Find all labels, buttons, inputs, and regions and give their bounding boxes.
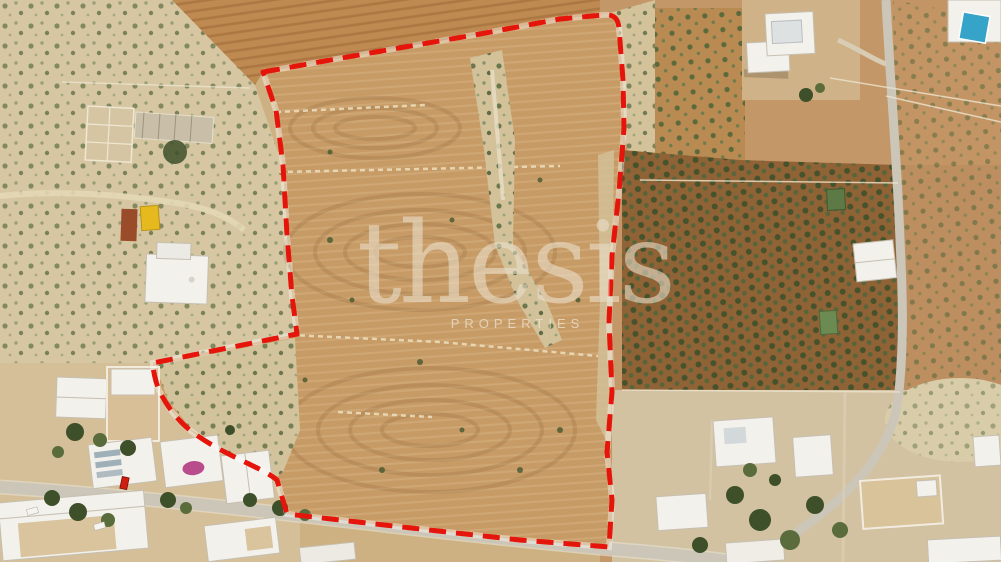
apartment-block xyxy=(0,490,148,561)
stone-ruin xyxy=(85,106,134,162)
villa-top-tree-2 xyxy=(815,83,825,93)
rust-container xyxy=(120,209,137,242)
swimming-pool xyxy=(959,12,990,43)
ruined-barn xyxy=(134,112,214,143)
aerial-photo: thesis PROPERTIES xyxy=(0,0,1001,562)
pool-villa xyxy=(948,0,1001,43)
villa-bl-a xyxy=(56,377,107,419)
green-shed xyxy=(826,189,845,211)
villa-br-b xyxy=(793,435,834,478)
building-br-f xyxy=(973,435,1001,467)
field-mid-right-shrubs xyxy=(900,165,1001,390)
tan-roof-house xyxy=(860,475,943,528)
building-br-g xyxy=(725,539,784,562)
white-barn xyxy=(853,240,897,282)
aerial-photo-canvas xyxy=(0,0,1001,562)
villa-br-a xyxy=(713,417,776,467)
building-br-e xyxy=(927,536,1001,562)
villa-br-c xyxy=(656,493,708,530)
walled-compound xyxy=(107,367,159,441)
villa-top-tree-1 xyxy=(799,88,813,102)
green-cabin xyxy=(819,310,838,334)
courtyard-tree xyxy=(163,140,187,164)
olive-orchard-upper-trees xyxy=(655,8,745,178)
yellow-container xyxy=(140,205,160,230)
